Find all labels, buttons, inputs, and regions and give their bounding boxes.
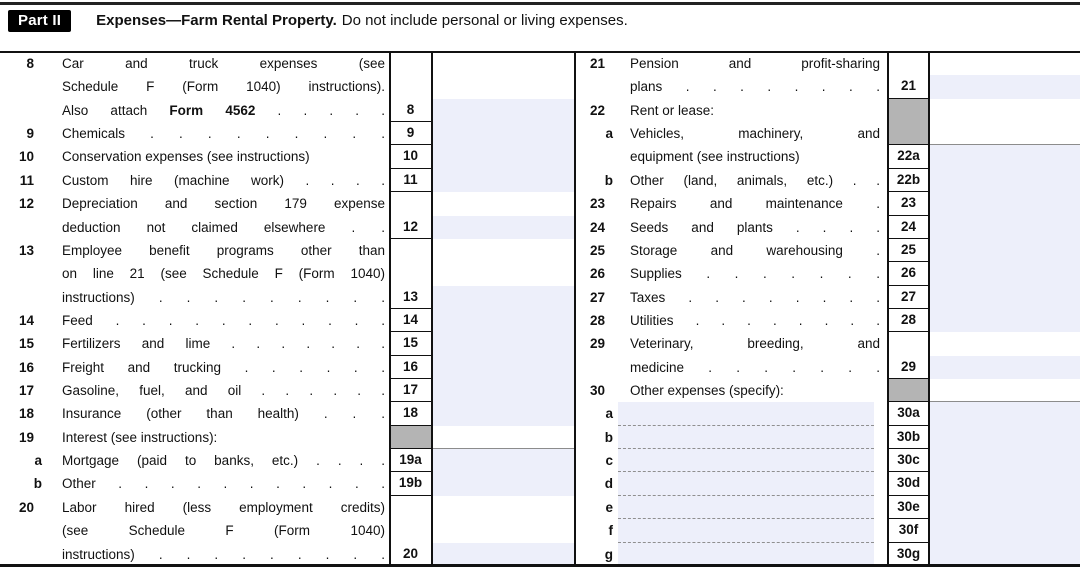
label-line: Also attach Form 4562 . . . . . xyxy=(62,99,385,122)
line-18-box: 18 xyxy=(389,402,432,425)
label-line: Storage and warehousing . xyxy=(630,239,880,262)
line-23-number: 23 xyxy=(577,192,605,215)
line-12-label: Depreciation and section 179 expensededu… xyxy=(62,192,385,239)
line-13-label: Employee benefit programs other thanon l… xyxy=(62,239,385,309)
line-19a-box-label: 19a xyxy=(399,448,422,471)
line-19b-label: Other . . . . . . . . . . . xyxy=(62,472,385,495)
line-22b-label: Other (land, animals, etc.) . . xyxy=(630,169,880,192)
line-30a-number: a xyxy=(577,402,613,425)
line-24-box-label: 24 xyxy=(901,215,916,238)
label-line: Conservation expenses (see instructions) xyxy=(62,145,385,168)
line-30f-amount-cell xyxy=(929,519,1080,542)
label-line: Utilities . . . . . . . . xyxy=(630,309,880,332)
line-16-label: Freight and trucking . . . . . . xyxy=(62,356,385,379)
line-30d-amount-field[interactable] xyxy=(929,472,1080,495)
line-22a-amount-cell xyxy=(929,145,1080,168)
line-29-number: 29 xyxy=(577,332,605,355)
line-10-box-label: 10 xyxy=(403,144,418,167)
line-30f-box: 30f xyxy=(888,519,929,542)
line-28-box-label: 28 xyxy=(901,308,916,331)
line-30g-number: g xyxy=(577,543,613,566)
line-24-box: 24 xyxy=(888,216,929,239)
line-29-box-label: 29 xyxy=(901,355,916,378)
line-30d-amount-cell xyxy=(929,472,1080,495)
line-10-box: 10 xyxy=(389,145,432,168)
line-19a-box: 19a xyxy=(389,449,432,472)
line-20-number: 20 xyxy=(6,496,34,519)
label-line: Schedule F (Form 1040) instructions). xyxy=(62,75,385,98)
label-line: Other . . . . . . . . . . . xyxy=(62,472,385,495)
line-21-box-label: 21 xyxy=(901,74,916,97)
line-9-amount-cell xyxy=(432,122,575,145)
line-22-box xyxy=(888,99,929,146)
line-11-amount-field[interactable] xyxy=(432,169,575,192)
line-11-number: 11 xyxy=(6,169,34,192)
line-8-number: 8 xyxy=(6,52,34,75)
line-17-label: Gasoline, fuel, and oil . . . . . . xyxy=(62,379,385,402)
line-30e-box: 30e xyxy=(888,496,929,519)
label-line: Other (land, animals, etc.) . . xyxy=(630,169,880,192)
label-line: Veterinary, breeding, and xyxy=(630,332,880,355)
column-divider-4 xyxy=(928,51,930,567)
line-19a-number: a xyxy=(6,449,42,472)
table-top-border xyxy=(0,51,1080,53)
line-15-box-label: 15 xyxy=(403,331,418,354)
line-9-amount-field[interactable] xyxy=(432,122,575,145)
line-22b-box-label: 22b xyxy=(897,168,920,191)
line-22a-amount-field[interactable] xyxy=(929,145,1080,168)
line-30f-number: f xyxy=(577,519,613,542)
line-30g-amount-field[interactable] xyxy=(929,543,1080,566)
line-15-amount-cell xyxy=(432,332,575,355)
label-line: Feed . . . . . . . . . . . xyxy=(62,309,385,332)
line-23-amount-cell xyxy=(929,192,1080,215)
line-13-amount-field[interactable] xyxy=(432,286,575,309)
line-25-amount-cell xyxy=(929,239,1080,262)
line-25-amount-field[interactable] xyxy=(929,239,1080,262)
expenses-table: 8910111213141516171819a19b202122a22b2324… xyxy=(0,0,1080,574)
line-23-box: 23 xyxy=(888,192,929,215)
line-30b-box: 30b xyxy=(888,426,929,449)
label-line: (see Schedule F (Form 1040) xyxy=(62,519,385,542)
line-29-amount-cell xyxy=(929,332,1080,379)
line-12-amount-cell xyxy=(432,192,575,239)
line-17-amount-field[interactable] xyxy=(432,379,575,402)
column-divider-0 xyxy=(389,51,391,567)
line-30-number: 30 xyxy=(577,379,605,402)
line-20-label: Labor hired (less employment credits)(se… xyxy=(62,496,385,566)
column-divider-3 xyxy=(887,51,889,567)
line-20-amount-field[interactable] xyxy=(432,543,575,566)
line-30b-box-label: 30b xyxy=(897,425,920,448)
label-line: Chemicals . . . . . . . . . xyxy=(62,122,385,145)
line-30g-description-field[interactable] xyxy=(618,543,874,566)
line-14-amount-cell xyxy=(432,309,575,332)
line-24-label: Seeds and plants . . . . xyxy=(630,216,880,239)
line-28-number: 28 xyxy=(577,309,605,332)
line-15-amount-field[interactable] xyxy=(432,332,575,355)
line-11-label: Custom hire (machine work) . . . . xyxy=(62,169,385,192)
line-20-amount-cell xyxy=(432,496,575,566)
line-22b-amount-cell xyxy=(929,169,1080,192)
line-19b-box-label: 19b xyxy=(399,471,422,494)
line-22b-amount-field[interactable] xyxy=(929,169,1080,192)
label-line: Supplies . . . . . . . xyxy=(630,262,880,285)
line-30c-box-label: 30c xyxy=(897,448,920,471)
line-13-number: 13 xyxy=(6,239,34,262)
form-4835-part2-page: Part II Expenses—Farm Rental Property.Do… xyxy=(0,0,1080,574)
line-19a-label: Mortgage (paid to banks, etc.) . . . . xyxy=(62,449,385,472)
line-19b-amount-field[interactable] xyxy=(432,472,575,495)
line-30b-description-field[interactable] xyxy=(618,426,874,449)
line-30a-amount-cell xyxy=(929,402,1080,425)
label-line: Repairs and maintenance . xyxy=(630,192,880,215)
line-18-label: Insurance (other than health) . . . xyxy=(62,402,385,425)
line-27-label: Taxes . . . . . . . . xyxy=(630,286,880,309)
line-23-label: Repairs and maintenance . xyxy=(630,192,880,215)
line-30-label: Other expenses (specify): xyxy=(630,379,880,402)
line-17-box-label: 17 xyxy=(403,378,418,401)
line-22-number: 22 xyxy=(577,99,605,122)
line-27-box: 27 xyxy=(888,286,929,309)
line-30b-amount-cell xyxy=(929,426,1080,449)
line-28-amount-field[interactable] xyxy=(929,309,1080,332)
line-18-amount-cell xyxy=(432,402,575,425)
line-9-box: 9 xyxy=(389,122,432,145)
line-14-amount-field[interactable] xyxy=(432,309,575,332)
line-15-number: 15 xyxy=(6,332,34,355)
line-29-amount-field[interactable] xyxy=(929,356,1080,379)
line-19b-amount-cell xyxy=(432,472,575,495)
label-line: deduction not claimed elsewhere . . xyxy=(62,216,385,239)
label-line: Interest (see instructions): xyxy=(62,426,385,449)
line-8-box: 8 xyxy=(389,52,432,122)
line-30g-amount-cell xyxy=(929,543,1080,566)
line-8-label: Car and truck expenses (seeSchedule F (F… xyxy=(62,52,385,122)
label-line: Employee benefit programs other than xyxy=(62,239,385,262)
line-30f-amount-field[interactable] xyxy=(929,519,1080,542)
line-30c-box: 30c xyxy=(888,449,929,472)
line-28-label: Utilities . . . . . . . . xyxy=(630,309,880,332)
label-line: Rent or lease: xyxy=(630,99,880,122)
line-30e-description-field[interactable] xyxy=(618,496,874,519)
line-21-number: 21 xyxy=(577,52,605,75)
line-18-amount-field[interactable] xyxy=(432,402,575,425)
line-22a-number: a xyxy=(577,122,613,145)
line-22-label: Rent or lease: xyxy=(630,99,880,122)
line-21-amount-cell xyxy=(929,52,1080,99)
line-30e-amount-cell xyxy=(929,496,1080,519)
label-line: equipment (see instructions) xyxy=(630,145,880,168)
line-30f-box-label: 30f xyxy=(899,518,919,541)
line-27-amount-cell xyxy=(929,286,1080,309)
line-19a-amount-field[interactable] xyxy=(432,449,575,472)
line-24-amount-field[interactable] xyxy=(929,216,1080,239)
line-22a-box-label: 22a xyxy=(897,144,920,167)
line-14-number: 14 xyxy=(6,309,34,332)
line-26-box-label: 26 xyxy=(901,261,916,284)
line-22-amount-cell xyxy=(929,99,1080,146)
label-line: Depreciation and section 179 expense xyxy=(62,192,385,215)
label-line: Fertilizers and lime . . . . . . . xyxy=(62,332,385,355)
line-25-box: 25 xyxy=(888,239,929,262)
line-26-amount-cell xyxy=(929,262,1080,285)
line-29-box: 29 xyxy=(888,332,929,379)
line-27-box-label: 27 xyxy=(901,285,916,308)
line-30b-amount-field[interactable] xyxy=(929,426,1080,449)
line-18-number: 18 xyxy=(6,402,34,425)
line-30d-box-label: 30d xyxy=(897,471,920,494)
line-22a-label: Vehicles, machinery, andequipment (see i… xyxy=(630,122,880,169)
line-11-amount-cell xyxy=(432,169,575,192)
line-10-amount-field[interactable] xyxy=(432,145,575,168)
line-26-label: Supplies . . . . . . . xyxy=(630,262,880,285)
label-line: instructions) . . . . . . . . . xyxy=(62,286,385,309)
line-10-label: Conservation expenses (see instructions) xyxy=(62,145,385,168)
label-line: Mortgage (paid to banks, etc.) . . . . xyxy=(62,449,385,472)
line-21-label: Pension and profit-sharingplans . . . . … xyxy=(630,52,880,99)
label-line: medicine . . . . . . . xyxy=(630,356,880,379)
line-12-number: 12 xyxy=(6,192,34,215)
label-line: plans . . . . . . . . xyxy=(630,75,880,98)
line-10-amount-cell xyxy=(432,145,575,168)
line-30e-amount-field[interactable] xyxy=(929,496,1080,519)
line-30-box xyxy=(888,379,929,402)
column-divider-1 xyxy=(431,51,433,567)
line-27-amount-field[interactable] xyxy=(929,286,1080,309)
line-17-amount-cell xyxy=(432,379,575,402)
line-15-box: 15 xyxy=(389,332,432,355)
label-line: Freight and trucking . . . . . . xyxy=(62,356,385,379)
label-line: Gasoline, fuel, and oil . . . . . . xyxy=(62,379,385,402)
line-19-box xyxy=(389,426,432,449)
line-20-box: 20 xyxy=(389,496,432,566)
label-line: Pension and profit-sharing xyxy=(630,52,880,75)
line-23-box-label: 23 xyxy=(901,191,916,214)
line-30g-box-label: 30g xyxy=(897,542,920,565)
line-30d-number: d xyxy=(577,472,613,495)
line-21-amount-field[interactable] xyxy=(929,75,1080,98)
line-30c-amount-field[interactable] xyxy=(929,449,1080,472)
line-30a-box: 30a xyxy=(888,402,929,425)
line-26-number: 26 xyxy=(577,262,605,285)
line-22a-box: 22a xyxy=(888,145,929,168)
line-30c-number: c xyxy=(577,449,613,472)
line-30b-number: b xyxy=(577,426,613,449)
line-25-label: Storage and warehousing . xyxy=(630,239,880,262)
label-line: Seeds and plants . . . . xyxy=(630,216,880,239)
line-19-label: Interest (see instructions): xyxy=(62,426,385,449)
line-11-box: 11 xyxy=(389,169,432,192)
line-19b-box: 19b xyxy=(389,472,432,495)
line-20-box-label: 20 xyxy=(403,542,418,565)
line-30e-number: e xyxy=(577,496,613,519)
line-17-number: 17 xyxy=(6,379,34,402)
line-16-box: 16 xyxy=(389,356,432,379)
table-bottom-border xyxy=(0,564,1080,567)
line-30a-description-field[interactable] xyxy=(618,402,874,425)
line-30e-box-label: 30e xyxy=(897,495,920,518)
line-22b-box: 22b xyxy=(888,169,929,192)
line-30g-box: 30g xyxy=(888,543,929,566)
line-22b-number: b xyxy=(577,169,613,192)
line-19a-amount-cell xyxy=(432,449,575,472)
line-17-box: 17 xyxy=(389,379,432,402)
line-30-amount-cell xyxy=(929,379,1080,402)
line-30a-box-label: 30a xyxy=(897,401,920,424)
line-24-number: 24 xyxy=(577,216,605,239)
line-23-amount-field[interactable] xyxy=(929,192,1080,215)
line-28-box: 28 xyxy=(888,309,929,332)
label-line: on line 21 (see Schedule F (Form 1040) xyxy=(62,262,385,285)
label-line: instructions) . . . . . . . . . xyxy=(62,543,385,566)
line-10-number: 10 xyxy=(6,145,34,168)
label-line: Vehicles, machinery, and xyxy=(630,122,880,145)
line-12-box: 12 xyxy=(389,192,432,239)
line-30f-description-field[interactable] xyxy=(618,519,874,542)
line-13-box: 13 xyxy=(389,239,432,309)
line-25-number: 25 xyxy=(577,239,605,262)
line-29-label: Veterinary, breeding, andmedicine . . . … xyxy=(630,332,880,379)
line-8-box-label: 8 xyxy=(407,98,415,121)
line-16-number: 16 xyxy=(6,356,34,379)
line-14-box-label: 14 xyxy=(403,308,418,331)
line-12-amount-field[interactable] xyxy=(432,216,575,239)
line-24-amount-cell xyxy=(929,216,1080,239)
line-28-amount-cell xyxy=(929,309,1080,332)
line-8-amount-cell xyxy=(432,52,575,122)
line-14-label: Feed . . . . . . . . . . . xyxy=(62,309,385,332)
line-19-number: 19 xyxy=(6,426,34,449)
line-30a-amount-field[interactable] xyxy=(929,402,1080,425)
line-16-amount-cell xyxy=(432,356,575,379)
label-line: Labor hired (less employment credits) xyxy=(62,496,385,519)
line-30c-description-field[interactable] xyxy=(618,449,874,472)
line-26-box: 26 xyxy=(888,262,929,285)
line-11-box-label: 11 xyxy=(403,168,417,191)
line-13-amount-cell xyxy=(432,239,575,309)
line-8-amount-field[interactable] xyxy=(432,99,575,122)
line-27-number: 27 xyxy=(577,286,605,309)
line-30d-box: 30d xyxy=(888,472,929,495)
line-19-amount-cell xyxy=(432,426,575,449)
line-18-box-label: 18 xyxy=(403,401,418,424)
line-30c-amount-cell xyxy=(929,449,1080,472)
line-9-box-label: 9 xyxy=(407,121,415,144)
label-line: Insurance (other than health) . . . xyxy=(62,402,385,425)
line-9-label: Chemicals . . . . . . . . . xyxy=(62,122,385,145)
line-16-amount-field[interactable] xyxy=(432,356,575,379)
line-14-box: 14 xyxy=(389,309,432,332)
line-16-box-label: 16 xyxy=(403,355,418,378)
column-divider-2 xyxy=(574,51,576,567)
label-line: Taxes . . . . . . . . xyxy=(630,286,880,309)
line-13-box-label: 13 xyxy=(403,285,418,308)
line-21-box: 21 xyxy=(888,52,929,99)
line-15-label: Fertilizers and lime . . . . . . . xyxy=(62,332,385,355)
line-12-box-label: 12 xyxy=(403,215,418,238)
line-19b-number: b xyxy=(6,472,42,495)
line-30d-description-field[interactable] xyxy=(618,472,874,495)
line-26-amount-field[interactable] xyxy=(929,262,1080,285)
line-9-number: 9 xyxy=(6,122,34,145)
label-line: Custom hire (machine work) . . . . xyxy=(62,169,385,192)
line-25-box-label: 25 xyxy=(901,238,916,261)
label-line: Car and truck expenses (see xyxy=(62,52,385,75)
label-line: Other expenses (specify): xyxy=(630,379,880,402)
